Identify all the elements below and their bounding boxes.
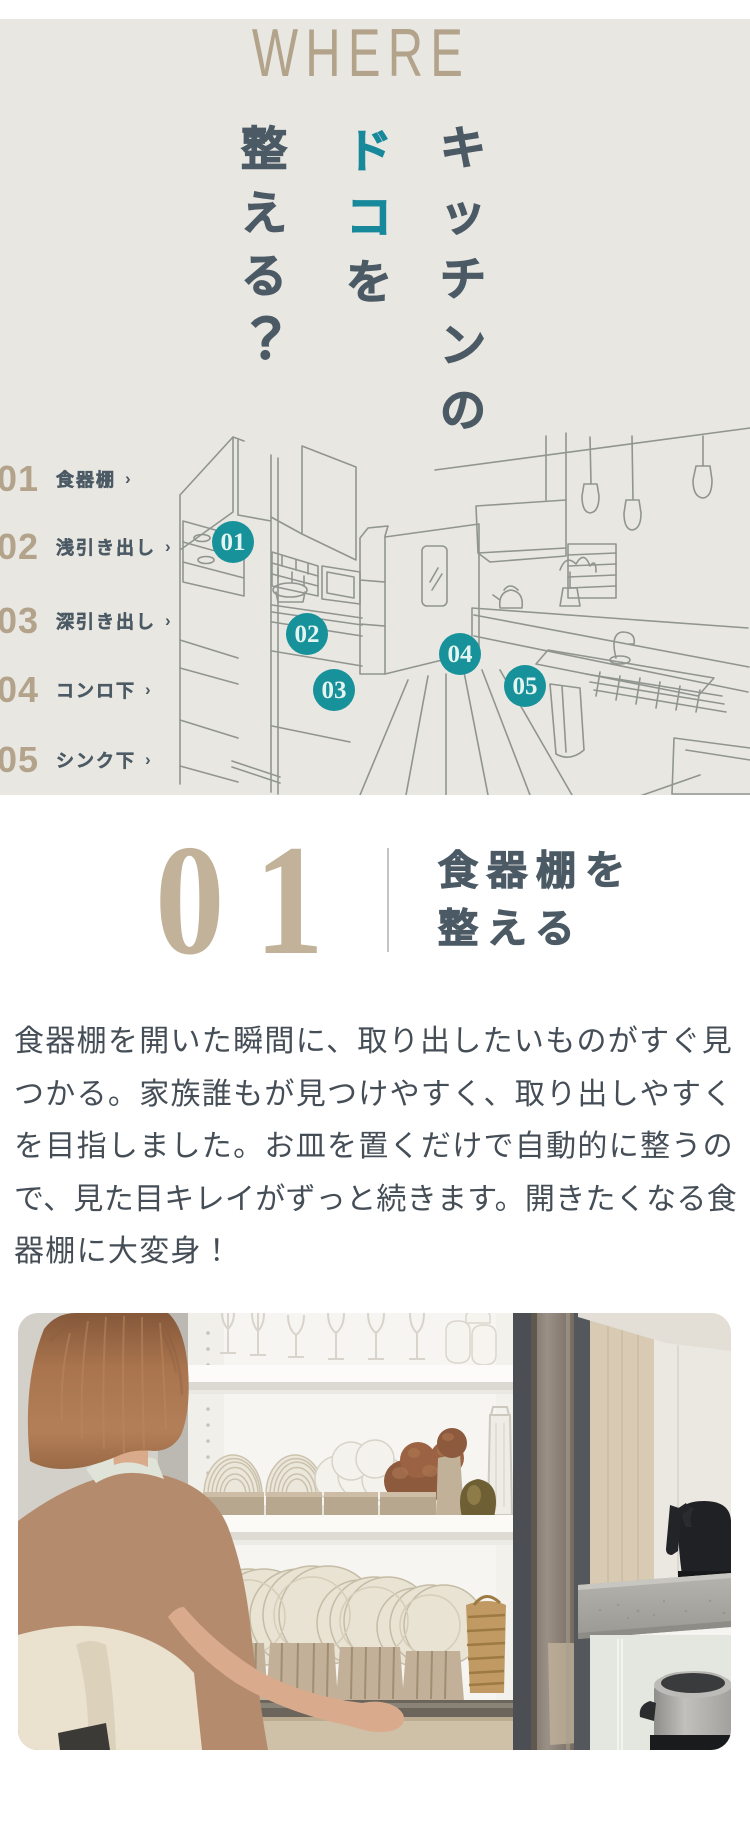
svg-text:03: 03 — [322, 677, 347, 704]
svg-text:05: 05 — [513, 673, 538, 700]
svg-text:01: 01 — [221, 529, 246, 556]
svg-text:04: 04 — [448, 641, 474, 668]
svg-text:02: 02 — [295, 621, 320, 648]
